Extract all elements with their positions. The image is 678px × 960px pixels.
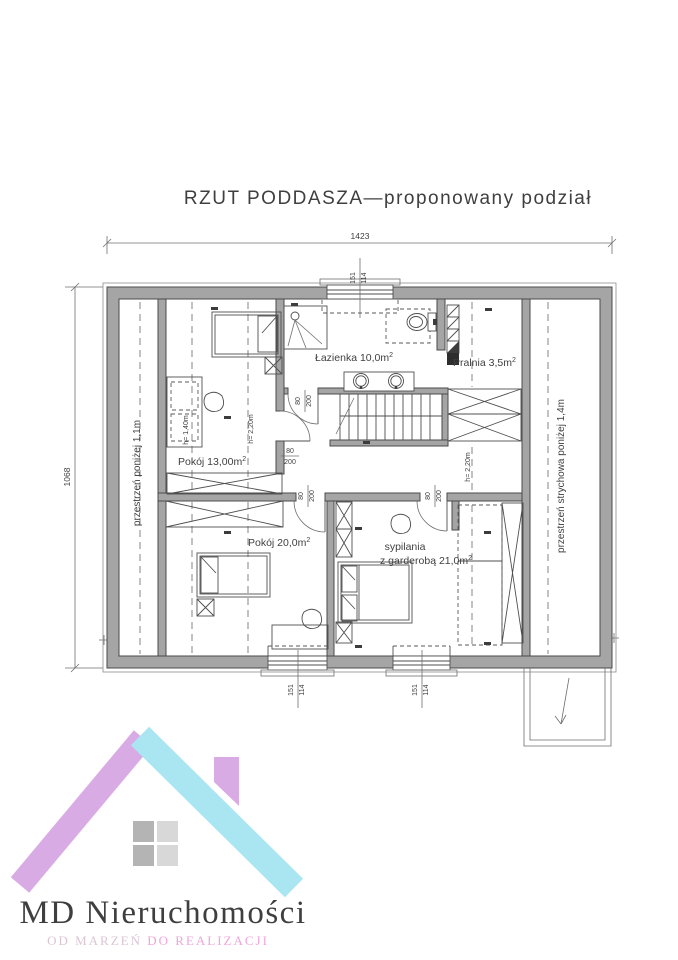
toilet xyxy=(407,313,437,331)
window-top-dim-den: 114 xyxy=(361,272,368,283)
company-logo: MD Nieruchomości OD MARZEŃ DO REALIZACJI xyxy=(11,727,307,948)
label-room20: Pokój 20,0m2 xyxy=(248,537,310,549)
staircase xyxy=(336,394,442,440)
window-br-dim-den: 114 xyxy=(423,684,430,695)
room13-door-dim-num: 80 xyxy=(286,448,294,455)
label-bedroom-line2: z garderobą 21,0m2 xyxy=(380,555,472,567)
corridor-builtin-wardrobes xyxy=(448,389,521,441)
bathroom-door-dim-num: 80 xyxy=(295,397,302,405)
dim-width-label: 1423 xyxy=(351,231,370,241)
outer-walls xyxy=(103,283,616,672)
corner-cross-marks xyxy=(99,633,619,645)
label-room13: Pokój 13,00m2 xyxy=(178,456,246,468)
bedroom-door-dim-num: 80 xyxy=(425,492,432,500)
walk-in-closet-area xyxy=(458,503,523,645)
bedroom-door-dim-den: 200 xyxy=(436,490,443,502)
wardrobe-room20 xyxy=(166,501,283,527)
middle-wall-east xyxy=(447,493,522,501)
label-left-strip: przestrzeń poniżej 1,1m xyxy=(132,420,143,526)
chair-room20 xyxy=(302,609,322,628)
floor-plan-page: RZUT PODDASZA—proponowany podział 1423 1… xyxy=(0,0,678,960)
logo-company-name: MD Nieruchomości xyxy=(19,895,306,931)
label-bathroom: Łazienka 10,0m2 xyxy=(315,352,393,364)
window-br-dim-num: 151 xyxy=(412,684,419,696)
label-h140: h= 1,40m xyxy=(183,415,190,445)
doors: 80 200 80 200 80 200 80 200 xyxy=(280,390,447,532)
shower xyxy=(284,303,327,349)
left-strip-wall xyxy=(158,299,166,656)
window-bl-dim-den: 114 xyxy=(299,684,306,695)
desk-room20 xyxy=(272,625,328,649)
middle-wall-center xyxy=(325,493,420,501)
bedroom-door: 80 200 xyxy=(417,485,447,531)
bathroom-door-dim-den: 200 xyxy=(306,395,313,407)
laundry-appliance-stack xyxy=(447,305,459,365)
room20-door: 80 200 xyxy=(294,485,325,532)
vanity-double-sink xyxy=(344,372,414,391)
title-block: RZUT PODDASZA—proponowany podział xyxy=(184,188,592,209)
chair-room13 xyxy=(204,392,224,411)
label-right-strip: przestrzeń strychowa poniżej 1,4m xyxy=(556,399,567,553)
label-laundry: Pralnia 3,5m2 xyxy=(453,357,516,369)
bed-room13 xyxy=(212,312,281,357)
roof-left-beam xyxy=(11,730,152,892)
slope-arrow xyxy=(555,678,569,724)
stair-south-wall xyxy=(330,440,448,446)
wardrobe-room13 xyxy=(167,473,282,494)
window-bottom-right: 151 114 xyxy=(386,646,457,708)
annex-roof-outline xyxy=(524,668,611,746)
bath-laundry-wall xyxy=(437,299,445,350)
logo-tagline: OD MARZEŃ DO REALIZACJI xyxy=(47,933,269,948)
dimension-left: 1068 xyxy=(62,283,103,672)
bed-bedroom xyxy=(338,562,412,623)
window-bottom-left: 151 114 xyxy=(261,646,334,708)
stair-east-wall xyxy=(442,394,448,440)
page-title: RZUT PODDASZA—proponowany podział xyxy=(184,188,592,209)
chair-bedroom xyxy=(391,514,411,533)
dimension-top: 1423 xyxy=(103,231,616,254)
floor-plan-drawing: RZUT PODDASZA—proponowany podział 1423 1… xyxy=(0,0,678,960)
label-h220-left: h= 2,20m xyxy=(248,414,255,444)
room20-door-dim-num: 80 xyxy=(298,492,305,500)
logo-window xyxy=(133,821,178,866)
window-top-dim-num: 151 xyxy=(350,272,357,284)
label-h220-right: h= 2,20m xyxy=(465,452,472,482)
roof-right-beam xyxy=(131,727,303,898)
nightstand-room20 xyxy=(197,599,214,616)
bed-room20 xyxy=(197,553,270,597)
room13-door-dim-den: 200 xyxy=(284,459,296,466)
dim-height-label: 1068 xyxy=(62,467,72,486)
window-bl-dim-num: 151 xyxy=(288,684,295,696)
room20-door-dim-den: 200 xyxy=(309,490,316,502)
label-bedroom-line1: sypilania xyxy=(385,541,426,553)
bathroom-door: 80 200 xyxy=(288,390,318,424)
